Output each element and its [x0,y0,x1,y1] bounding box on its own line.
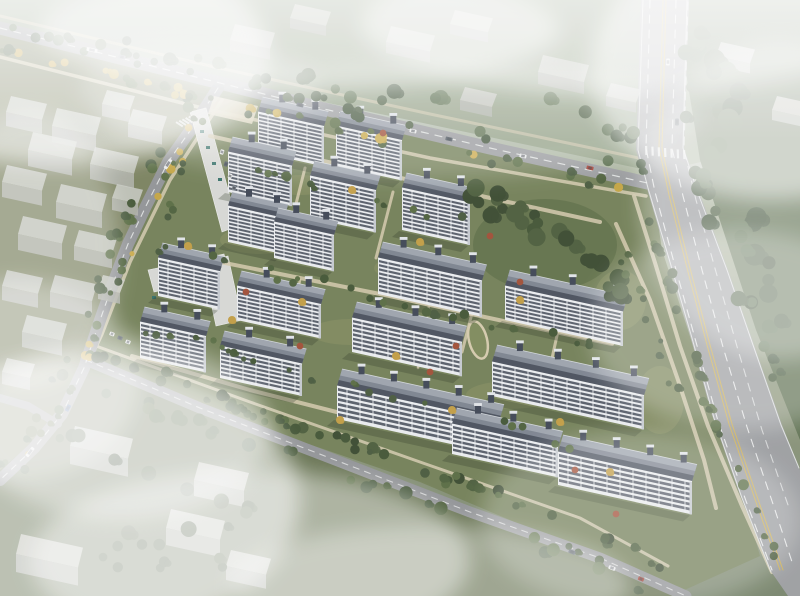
rendering-canvas [0,0,800,596]
aerial-rendering-residential-complex [0,0,800,596]
fog-haze-layer [0,0,800,596]
